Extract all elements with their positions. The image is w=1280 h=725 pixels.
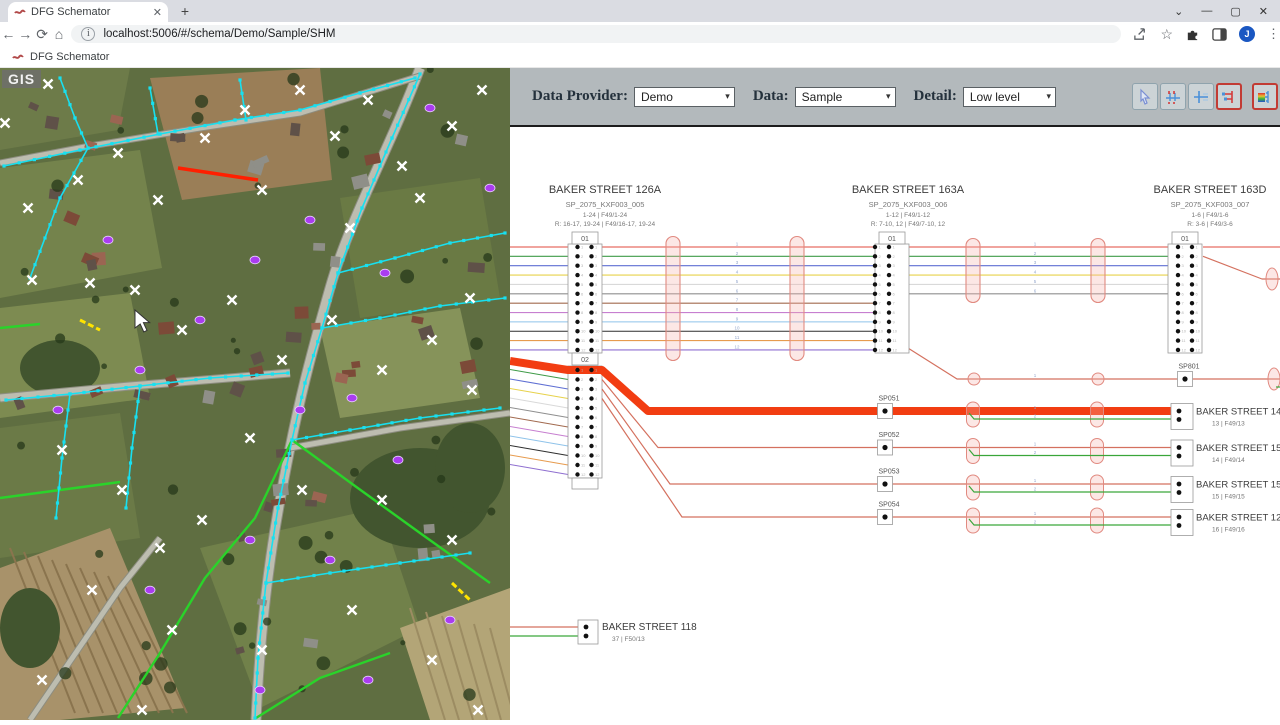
network-node[interactable] (279, 493, 282, 496)
purple-marker[interactable] (245, 536, 255, 544)
splice-oval[interactable] (1091, 475, 1104, 500)
purple-marker[interactable] (295, 406, 305, 414)
fiber-port-dot[interactable] (1176, 338, 1180, 342)
fiber-port-dot[interactable] (589, 254, 593, 258)
detail-select[interactable]: Low level▾ (963, 87, 1056, 107)
connector-block-02[interactable] (568, 366, 602, 478)
network-node[interactable] (124, 386, 127, 389)
network-node[interactable] (240, 374, 243, 377)
network-node[interactable] (38, 250, 41, 253)
network-node[interactable] (384, 150, 387, 153)
fiber-port-dot[interactable] (589, 406, 593, 410)
fiber-port-dot[interactable] (887, 245, 891, 249)
network-node[interactable] (253, 716, 256, 719)
network-node[interactable] (298, 108, 301, 111)
duct-oval[interactable] (1091, 239, 1105, 303)
network-node[interactable] (303, 381, 306, 384)
network-node[interactable] (364, 319, 367, 322)
window-close-button[interactable]: ✕ (1259, 5, 1268, 18)
network-node[interactable] (280, 579, 283, 582)
terminal-box[interactable] (1171, 477, 1193, 503)
network-node[interactable] (413, 76, 416, 79)
network-node[interactable] (154, 117, 157, 120)
network-node[interactable] (348, 428, 351, 431)
network-node[interactable] (218, 121, 221, 124)
network-node[interactable] (96, 389, 99, 392)
data-provider-select[interactable]: Demo▾ (634, 87, 735, 107)
fiber-port-dot[interactable] (1176, 329, 1180, 333)
splice-oval[interactable] (1091, 508, 1104, 533)
purple-marker[interactable] (425, 104, 435, 112)
network-node[interactable] (450, 412, 453, 415)
network-node[interactable] (365, 264, 368, 267)
fiber-port-dot[interactable] (873, 264, 877, 268)
extensions-icon[interactable] (1185, 27, 1200, 42)
forward-icon[interactable]: → (17, 26, 34, 42)
network-node[interactable] (384, 563, 387, 566)
network-node[interactable] (379, 260, 382, 263)
schema-ticks-button[interactable] (1160, 83, 1186, 110)
fiber-port-dot[interactable] (589, 377, 593, 381)
gis-map-panel[interactable]: GIS (0, 68, 510, 720)
network-node[interactable] (53, 210, 56, 213)
fiber-port-dot[interactable] (1190, 282, 1194, 286)
network-node[interactable] (256, 671, 259, 674)
fiber-port-dot[interactable] (1176, 292, 1180, 296)
network-node[interactable] (254, 701, 257, 704)
purple-marker[interactable] (325, 556, 335, 564)
browser-menu-icon[interactable]: ⋮ (1267, 26, 1280, 42)
network-node[interactable] (194, 378, 197, 381)
splice-oval[interactable] (1266, 268, 1278, 290)
network-node[interactable] (346, 245, 349, 248)
network-node[interactable] (79, 159, 82, 162)
network-node[interactable] (188, 127, 191, 130)
network-node[interactable] (142, 136, 145, 139)
network-node[interactable] (138, 384, 141, 387)
schema-colors-button[interactable] (1252, 83, 1278, 110)
fiber-port-dot[interactable] (589, 348, 593, 352)
network-node[interactable] (134, 415, 137, 418)
fiber-port-dot[interactable] (575, 434, 579, 438)
terminal-box[interactable] (1171, 440, 1193, 466)
network-node[interactable] (408, 310, 411, 313)
fiber-port-dot[interactable] (1176, 264, 1180, 268)
network-node[interactable] (362, 426, 365, 429)
network-node[interactable] (276, 506, 279, 509)
network-node[interactable] (400, 80, 403, 83)
network-node[interactable] (356, 219, 359, 222)
purple-marker[interactable] (255, 686, 265, 694)
network-node[interactable] (407, 253, 410, 256)
network-node[interactable] (285, 466, 288, 469)
network-node[interactable] (396, 124, 399, 127)
network-node[interactable] (370, 565, 373, 568)
fiber-port-dot[interactable] (575, 377, 579, 381)
network-node[interactable] (290, 438, 293, 441)
network-node[interactable] (166, 381, 169, 384)
fiber-port-dot[interactable] (873, 245, 877, 249)
fiber-port-dot[interactable] (873, 282, 877, 286)
network-node[interactable] (66, 408, 69, 411)
purple-marker[interactable] (195, 316, 205, 324)
fiber-port-dot[interactable] (589, 425, 593, 429)
fiber-port-dot[interactable] (575, 273, 579, 277)
purple-marker[interactable] (445, 616, 455, 624)
fiber-port-dot[interactable] (873, 348, 877, 352)
network-node[interactable] (498, 406, 501, 409)
network-node[interactable] (110, 388, 113, 391)
network-node[interactable] (73, 116, 76, 119)
fiber-port-dot[interactable] (873, 301, 877, 305)
network-node[interactable] (372, 88, 375, 91)
network-node[interactable] (261, 611, 264, 614)
network-node[interactable] (78, 148, 81, 151)
fiber-port-dot[interactable] (575, 320, 579, 324)
fiber-port-dot[interactable] (873, 273, 877, 277)
purple-marker[interactable] (485, 184, 495, 192)
network-node[interactable] (2, 164, 5, 167)
fiber-port-dot[interactable] (575, 387, 579, 391)
terminal-box[interactable] (1171, 404, 1193, 430)
purple-marker[interactable] (53, 406, 63, 414)
network-node[interactable] (328, 299, 331, 302)
network-node[interactable] (256, 656, 259, 659)
fiber-port-dot[interactable] (1190, 338, 1194, 342)
fiber-port-dot[interactable] (589, 444, 593, 448)
fiber-port-dot[interactable] (1190, 292, 1194, 296)
network-node[interactable] (156, 132, 159, 135)
data-select[interactable]: Sample▾ (795, 87, 896, 107)
fiber-port-dot[interactable] (589, 338, 593, 342)
fiber-port-dot[interactable] (575, 245, 579, 249)
network-node[interactable] (272, 536, 275, 539)
fiber-port-dot[interactable] (575, 338, 579, 342)
network-node[interactable] (255, 373, 258, 376)
network-node[interactable] (127, 476, 130, 479)
network-node[interactable] (274, 521, 277, 524)
bookmark-star-icon[interactable]: ☆ (1160, 26, 1173, 43)
purple-marker[interactable] (250, 256, 260, 264)
fiber-port-dot[interactable] (575, 348, 579, 352)
schematic-canvas[interactable]: 0101010211223344556677889910101111121211… (510, 127, 1280, 720)
network-node[interactable] (454, 553, 457, 556)
fiber-port-dot[interactable] (1190, 348, 1194, 352)
network-node[interactable] (282, 111, 285, 114)
network-node[interactable] (68, 392, 71, 395)
network-node[interactable] (62, 440, 65, 443)
fiber-port-dot[interactable] (575, 264, 579, 268)
network-node[interactable] (313, 104, 316, 107)
fiber-port-dot[interactable] (887, 301, 891, 305)
fiber-port-dot[interactable] (887, 310, 891, 314)
tab-close-icon[interactable]: ✕ (153, 6, 162, 19)
network-node[interactable] (54, 516, 57, 519)
share-icon[interactable] (1133, 27, 1148, 42)
splice-oval[interactable] (967, 508, 980, 533)
network-node[interactable] (393, 256, 396, 259)
fiber-port-dot[interactable] (1190, 264, 1194, 268)
aerial-map[interactable] (0, 68, 510, 720)
network-node[interactable] (426, 557, 429, 560)
fiber-port-dot[interactable] (1190, 320, 1194, 324)
port-box-footer[interactable] (572, 478, 598, 489)
schema-trace-button[interactable] (1216, 83, 1242, 110)
select-tool-button[interactable] (1132, 83, 1158, 110)
network-node[interactable] (435, 245, 438, 248)
fiber-port-dot[interactable] (589, 273, 593, 277)
network-node[interactable] (434, 414, 437, 417)
network-node[interactable] (173, 130, 176, 133)
network-node[interactable] (129, 461, 132, 464)
network-node[interactable] (43, 236, 46, 239)
network-node[interactable] (413, 85, 416, 88)
network-node[interactable] (455, 302, 458, 305)
network-node[interactable] (18, 161, 21, 164)
purple-marker[interactable] (380, 269, 390, 277)
network-node[interactable] (56, 501, 59, 504)
network-node[interactable] (296, 576, 299, 579)
fiber-port-dot[interactable] (1176, 310, 1180, 314)
network-node[interactable] (203, 124, 206, 127)
fiber-port-dot[interactable] (575, 453, 579, 457)
purple-marker[interactable] (305, 216, 315, 224)
reload-icon[interactable]: ⟳ (34, 26, 51, 43)
network-node[interactable] (372, 178, 375, 181)
network-node[interactable] (72, 171, 75, 174)
network-node[interactable] (336, 271, 339, 274)
fiber-port-dot[interactable] (1176, 320, 1180, 324)
fiber-port-dot[interactable] (575, 310, 579, 314)
fiber-port-dot[interactable] (887, 273, 891, 277)
fiber-port-dot[interactable] (589, 329, 593, 333)
network-node[interactable] (390, 136, 393, 139)
network-node[interactable] (124, 506, 127, 509)
network-node[interactable] (82, 391, 85, 394)
fiber-port-dot[interactable] (589, 434, 593, 438)
fiber-port-dot[interactable] (873, 320, 877, 324)
fiber-port-dot[interactable] (1176, 254, 1180, 258)
network-node[interactable] (267, 566, 270, 569)
duct-oval[interactable] (666, 237, 680, 361)
purple-marker[interactable] (103, 236, 113, 244)
fiber-port-dot[interactable] (589, 463, 593, 467)
side-panel-icon[interactable] (1212, 27, 1227, 42)
network-node[interactable] (305, 436, 308, 439)
network-node[interactable] (358, 91, 361, 94)
network-node[interactable] (351, 268, 354, 271)
fiber-port-dot[interactable] (575, 472, 579, 476)
connector-block-163d[interactable] (1168, 244, 1202, 353)
network-node[interactable] (136, 400, 139, 403)
fiber-port-dot[interactable] (873, 292, 877, 296)
network-node[interactable] (36, 395, 39, 398)
network-node[interactable] (60, 456, 63, 459)
network-node[interactable] (80, 131, 83, 134)
splice-oval[interactable] (967, 439, 980, 464)
network-node[interactable] (152, 383, 155, 386)
network-node[interactable] (94, 145, 97, 148)
network-node[interactable] (490, 234, 493, 237)
network-node[interactable] (312, 574, 315, 577)
splice-oval[interactable] (1092, 373, 1104, 385)
fiber-port-dot[interactable] (1190, 310, 1194, 314)
fiber-port-dot[interactable] (589, 387, 593, 391)
fiber-port-dot[interactable] (887, 254, 891, 258)
fiber-port-dot[interactable] (575, 425, 579, 429)
network-node[interactable] (68, 103, 71, 106)
network-node[interactable] (328, 571, 331, 574)
network-node[interactable] (151, 102, 154, 105)
network-node[interactable] (148, 86, 151, 89)
network-node[interactable] (300, 396, 303, 399)
network-node[interactable] (224, 375, 227, 378)
network-node[interactable] (65, 184, 68, 187)
fiber-port-dot[interactable] (1190, 301, 1194, 305)
purple-marker[interactable] (135, 366, 145, 374)
fiber-port-dot[interactable] (887, 338, 891, 342)
network-node[interactable] (349, 321, 352, 324)
fiber-port-dot[interactable] (575, 282, 579, 286)
fiber-port-dot[interactable] (873, 254, 877, 258)
browser-tab[interactable]: DFG Schemator ✕ (8, 2, 168, 22)
network-node[interactable] (503, 296, 506, 299)
network-node[interactable] (286, 371, 289, 374)
fiber-port-dot[interactable] (575, 415, 579, 419)
network-node[interactable] (132, 431, 135, 434)
page-info-icon[interactable]: i (81, 27, 95, 41)
network-node[interactable] (244, 118, 247, 121)
fiber-port-dot[interactable] (589, 264, 593, 268)
fiber-port-dot[interactable] (1190, 329, 1194, 333)
network-node[interactable] (466, 410, 469, 413)
network-node[interactable] (250, 116, 253, 119)
network-node[interactable] (266, 113, 269, 116)
bookmark-item[interactable]: DFG Schemator (30, 51, 109, 63)
network-node[interactable] (378, 316, 381, 319)
network-node[interactable] (59, 471, 62, 474)
network-node[interactable] (33, 158, 36, 161)
fiber-port-dot[interactable] (575, 396, 579, 400)
network-node[interactable] (324, 313, 327, 316)
fiber-port-dot[interactable] (589, 301, 593, 305)
fiber-port-dot[interactable] (1176, 301, 1180, 305)
network-node[interactable] (468, 551, 471, 554)
network-node[interactable] (332, 285, 335, 288)
network-node[interactable] (390, 421, 393, 424)
fiber-port-dot[interactable] (887, 329, 891, 333)
network-node[interactable] (294, 424, 297, 427)
fiber-port-dot[interactable] (589, 245, 593, 249)
network-node[interactable] (418, 416, 421, 419)
network-node[interactable] (57, 486, 60, 489)
address-field[interactable]: i localhost:5006/#/schema/Demo/Sample/SH… (71, 25, 1121, 43)
fiber-port-dot[interactable] (887, 348, 891, 352)
connector-block-126a[interactable] (568, 244, 602, 353)
network-node[interactable] (33, 263, 36, 266)
window-minimize-button[interactable]: — (1201, 5, 1212, 17)
network-node[interactable] (52, 394, 55, 397)
fiber-port-dot[interactable] (887, 320, 891, 324)
network-node[interactable] (312, 354, 315, 357)
fiber-port-dot[interactable] (589, 282, 593, 286)
network-node[interactable] (378, 164, 381, 167)
fiber-port-dot[interactable] (887, 292, 891, 296)
fiber-port-dot[interactable] (589, 472, 593, 476)
network-node[interactable] (269, 551, 272, 554)
network-node[interactable] (260, 626, 263, 629)
back-icon[interactable]: ← (0, 26, 17, 42)
fiber-port-dot[interactable] (873, 338, 877, 342)
tab-search-icon[interactable]: ⌄ (1174, 5, 1183, 18)
purple-marker[interactable] (393, 456, 403, 464)
network-node[interactable] (240, 92, 243, 95)
network-node[interactable] (328, 100, 331, 103)
network-node[interactable] (238, 78, 241, 81)
fiber-port-dot[interactable] (1190, 273, 1194, 277)
duct-oval[interactable] (966, 239, 980, 303)
network-node[interactable] (440, 555, 443, 558)
purple-marker[interactable] (145, 586, 155, 594)
fiber-port-dot[interactable] (873, 310, 877, 314)
fiber-port-dot[interactable] (873, 329, 877, 333)
network-node[interactable] (263, 596, 266, 599)
network-node[interactable] (208, 376, 211, 379)
network-node[interactable] (360, 206, 363, 209)
fiber-port-dot[interactable] (575, 444, 579, 448)
fiber-port-dot[interactable] (589, 396, 593, 400)
network-node[interactable] (386, 84, 389, 87)
profile-avatar[interactable]: J (1239, 26, 1255, 42)
network-node[interactable] (282, 479, 285, 482)
fiber-port-dot[interactable] (575, 329, 579, 333)
network-node[interactable] (58, 196, 61, 199)
new-tab-button[interactable]: + (176, 3, 194, 21)
fiber-port-dot[interactable] (887, 264, 891, 268)
network-node[interactable] (393, 313, 396, 316)
network-node[interactable] (462, 239, 465, 242)
network-node[interactable] (438, 304, 441, 307)
fiber-port-dot[interactable] (1176, 245, 1180, 249)
network-node[interactable] (271, 372, 274, 375)
network-node[interactable] (63, 90, 66, 93)
network-node[interactable] (366, 192, 369, 195)
fiber-port-dot[interactable] (887, 282, 891, 286)
network-node[interactable] (63, 152, 66, 155)
network-node[interactable] (482, 408, 485, 411)
network-node[interactable] (407, 98, 410, 101)
fiber-port-dot[interactable] (1176, 282, 1180, 286)
network-node[interactable] (316, 340, 319, 343)
fiber-port-dot[interactable] (1176, 273, 1180, 277)
network-node[interactable] (48, 155, 51, 158)
window-maximize-button[interactable]: ▢ (1230, 5, 1240, 18)
network-node[interactable] (264, 581, 267, 584)
network-node[interactable] (110, 142, 113, 145)
purple-marker[interactable] (347, 394, 357, 402)
fiber-port-dot[interactable] (589, 453, 593, 457)
schema-crosshair-button[interactable] (1188, 83, 1214, 110)
network-node[interactable] (402, 111, 405, 114)
fiber-port-dot[interactable] (575, 301, 579, 305)
network-node[interactable] (342, 569, 345, 572)
fiber-port-dot[interactable] (589, 310, 593, 314)
network-node[interactable] (423, 307, 426, 310)
network-node[interactable] (126, 139, 129, 142)
network-node[interactable] (334, 431, 337, 434)
network-node[interactable] (476, 236, 479, 239)
network-node[interactable] (20, 397, 23, 400)
